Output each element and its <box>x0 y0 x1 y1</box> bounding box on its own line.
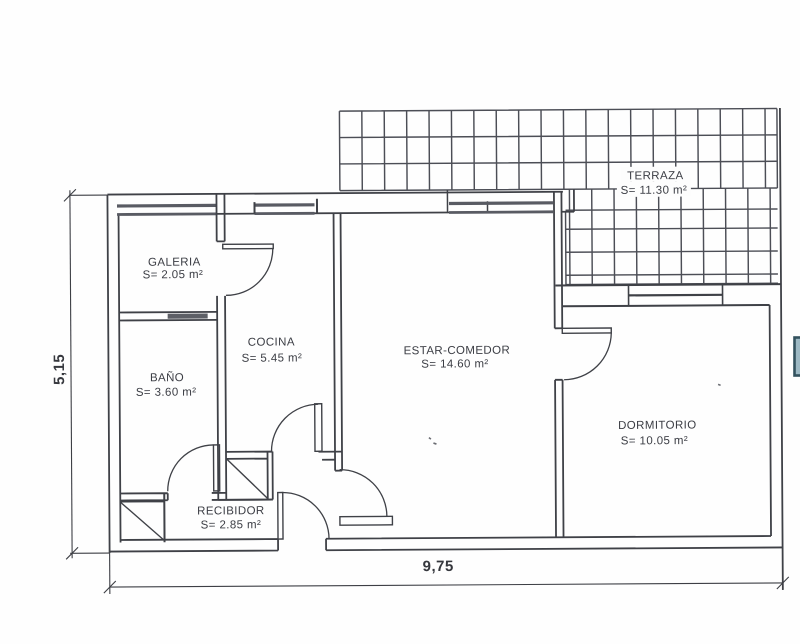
svg-text:GALERIA: GALERIA <box>148 256 201 268</box>
svg-text:COCINA: COCINA <box>248 336 295 348</box>
svg-text:DORMITORIO: DORMITORIO <box>618 419 697 431</box>
svg-text:S= 3.60 m²: S= 3.60 m² <box>136 387 197 399</box>
svg-text:BAÑO: BAÑO <box>150 371 184 384</box>
svg-text:S= 11.30 m²: S= 11.30 m² <box>621 185 688 197</box>
svg-text:9,75: 9,75 <box>423 558 454 575</box>
svg-text:S= 2.05 m²: S= 2.05 m² <box>143 269 204 281</box>
svg-text:S= 2.85 m²: S= 2.85 m² <box>201 519 262 531</box>
svg-text:S= 14.60 m²: S= 14.60 m² <box>421 358 488 370</box>
svg-text:TERRAZA: TERRAZA <box>627 170 684 182</box>
svg-text:S= 10.05 m²: S= 10.05 m² <box>621 435 688 447</box>
svg-text:S= 5.45 m²: S= 5.45 m² <box>242 352 303 364</box>
svg-text:5,15: 5,15 <box>51 354 68 385</box>
svg-text:RECIBIDOR: RECIBIDOR <box>197 505 265 517</box>
svg-text:ESTAR-COMEDOR: ESTAR-COMEDOR <box>404 345 511 358</box>
